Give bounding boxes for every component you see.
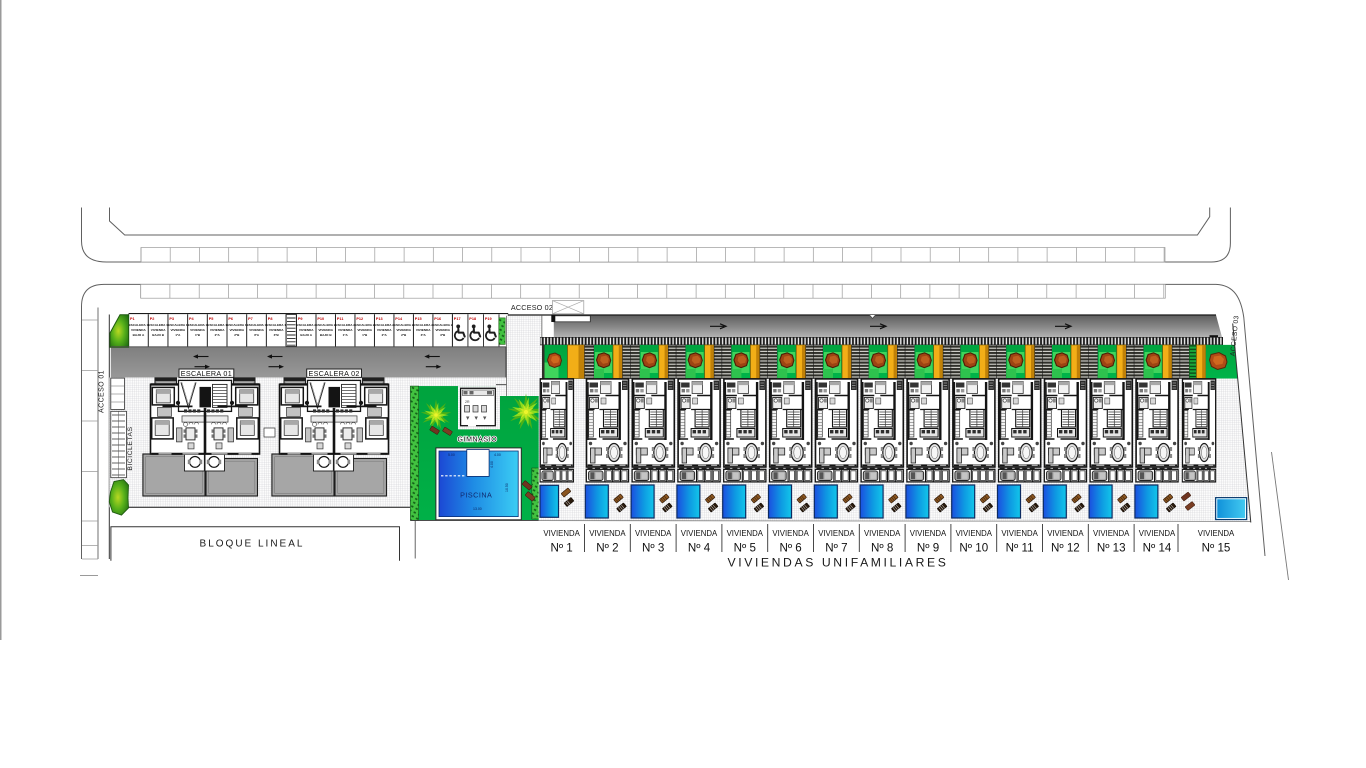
svg-text:P3: P3 (169, 317, 174, 321)
svg-text:P15: P15 (415, 317, 422, 321)
svg-text:VIVIENDA: VIVIENDA (131, 328, 146, 332)
svg-text:VIVIENDA: VIVIENDA (396, 328, 411, 332)
svg-text:2ºB: 2ºB (401, 333, 407, 337)
svg-text:ESCALERA 1: ESCALERA 1 (148, 323, 168, 327)
svg-text:VIVIENDA: VIVIENDA (681, 529, 718, 538)
svg-text:VIVIENDA: VIVIENDA (589, 529, 626, 538)
svg-text:VIVIENDA: VIVIENDA (543, 529, 580, 538)
svg-text:P7: P7 (248, 317, 253, 321)
svg-text:VIVIENDA: VIVIENDA (727, 529, 764, 538)
svg-text:P8: P8 (268, 317, 273, 321)
svg-text:3ºA: 3ºA (254, 333, 260, 337)
svg-text:VIVIENDA: VIVIENDA (338, 328, 353, 332)
svg-text:BICICLETAS: BICICLETAS (127, 426, 134, 470)
svg-text:P14: P14 (395, 317, 403, 321)
svg-text:ESCALERA 2: ESCALERA 2 (394, 323, 414, 327)
svg-text:P11: P11 (337, 317, 344, 321)
svg-text:13.00: 13.00 (473, 507, 482, 511)
svg-text:Nº 11: Nº 11 (1006, 542, 1034, 555)
svg-text:ESCALERA 2: ESCALERA 2 (316, 323, 336, 327)
svg-text:VIVIENDA: VIVIENDA (318, 328, 333, 332)
svg-text:Nº 10: Nº 10 (959, 542, 988, 555)
svg-text:VIVIENDA: VIVIENDA (956, 529, 993, 538)
svg-text:ESCALERA 2: ESCALERA 2 (413, 323, 433, 327)
svg-text:VIVIENDA: VIVIENDA (190, 328, 205, 332)
svg-text:P16: P16 (434, 317, 441, 321)
svg-text:4.00: 4.00 (490, 461, 494, 468)
svg-text:VIVIENDA: VIVIENDA (1001, 529, 1038, 538)
svg-text:ESCALERA 1: ESCALERA 1 (129, 323, 149, 327)
svg-text:P6: P6 (228, 317, 233, 321)
svg-text:VIVIENDA: VIVIENDA (377, 328, 392, 332)
svg-text:Nº 2: Nº 2 (596, 542, 618, 555)
svg-text:2ºA: 2ºA (215, 333, 221, 337)
svg-text:Nº 12: Nº 12 (1051, 542, 1080, 555)
svg-text:Nº 6: Nº 6 (779, 542, 801, 555)
svg-text:VIVIENDA: VIVIENDA (229, 328, 244, 332)
svg-text:5.00: 5.00 (448, 453, 455, 457)
svg-text:VIVIENDA: VIVIENDA (772, 529, 809, 538)
svg-text:ESCALERA 01: ESCALERA 01 (181, 369, 232, 378)
svg-text:1ºB: 1ºB (195, 333, 201, 337)
svg-text:ESCALERA 2: ESCALERA 2 (374, 323, 394, 327)
svg-text:ESCALERA 2: ESCALERA 2 (335, 323, 355, 327)
svg-text:P18: P18 (469, 317, 476, 321)
svg-text:VIVIENDA: VIVIENDA (910, 529, 947, 538)
svg-text:VIVIENDAS UNIFAMILIARES: VIVIENDAS UNIFAMILIARES (728, 556, 949, 570)
svg-text:BAJO B: BAJO B (320, 333, 333, 337)
svg-text:Nº 3: Nº 3 (642, 542, 664, 555)
svg-text:ESCALERA 2: ESCALERA 2 (355, 323, 375, 327)
svg-text:VIVIENDA: VIVIENDA (1093, 529, 1130, 538)
svg-text:VIVIENDA: VIVIENDA (151, 328, 166, 332)
svg-text:P10: P10 (317, 317, 324, 321)
svg-text:VIVIENDA: VIVIENDA (357, 328, 372, 332)
svg-text:BAJO B: BAJO B (152, 333, 165, 337)
svg-text:2ºB: 2ºB (234, 333, 240, 337)
svg-text:VIVIENDA: VIVIENDA (170, 328, 185, 332)
svg-text:ESCALERA 1: ESCALERA 1 (168, 323, 188, 327)
svg-text:Nº 13: Nº 13 (1097, 542, 1126, 555)
svg-text:PISCINA: PISCINA (460, 491, 492, 500)
svg-text:BLOQUE LINEAL: BLOQUE LINEAL (200, 539, 305, 550)
svg-text:VIVIENDA: VIVIENDA (249, 328, 264, 332)
svg-text:VIVIENDA: VIVIENDA (1198, 529, 1235, 538)
svg-text:P2: P2 (150, 317, 155, 321)
svg-text:VIVIENDA: VIVIENDA (299, 328, 314, 332)
svg-text:ESCALERA 2: ESCALERA 2 (433, 323, 453, 327)
svg-text:BAJO A: BAJO A (300, 333, 312, 337)
svg-text:3ºB: 3ºB (440, 333, 446, 337)
svg-text:Nº 8: Nº 8 (871, 542, 893, 555)
svg-text:ESCALERA 1: ESCALERA 1 (247, 323, 267, 327)
svg-text:P12: P12 (356, 317, 363, 321)
svg-text:2ºA: 2ºA (382, 333, 388, 337)
svg-text:VIVIENDA: VIVIENDA (269, 328, 284, 332)
svg-text:GIMNASIO: GIMNASIO (457, 437, 497, 444)
svg-text:Nº 5: Nº 5 (734, 542, 756, 555)
svg-text:3ºB: 3ºB (274, 333, 280, 337)
svg-text:VIVIENDA: VIVIENDA (1047, 529, 1084, 538)
svg-text:2R: 2R (465, 400, 470, 404)
svg-text:ESCALERA 2: ESCALERA 2 (296, 323, 316, 327)
svg-text:VIVIENDA: VIVIENDA (435, 328, 450, 332)
svg-text:1ºB: 1ºB (362, 333, 368, 337)
svg-text:VIVIENDA: VIVIENDA (416, 328, 431, 332)
svg-text:ACCESO 02: ACCESO 02 (511, 303, 553, 312)
svg-text:3ºA: 3ºA (421, 333, 427, 337)
svg-text:Nº 1: Nº 1 (550, 542, 572, 555)
svg-text:BAJO A: BAJO A (133, 333, 145, 337)
svg-text:P13: P13 (376, 317, 383, 321)
svg-text:VIVIENDA: VIVIENDA (1139, 529, 1176, 538)
svg-text:Nº 9: Nº 9 (917, 542, 939, 555)
svg-text:ESCALERA 1: ESCALERA 1 (207, 323, 227, 327)
svg-text:10.50: 10.50 (505, 483, 509, 492)
svg-text:Nº 7: Nº 7 (825, 542, 847, 555)
svg-text:4.00: 4.00 (494, 453, 501, 457)
svg-text:Nº 4: Nº 4 (688, 542, 711, 555)
svg-text:ACCESO 01: ACCESO 01 (99, 370, 106, 413)
svg-text:1ºA: 1ºA (343, 333, 349, 337)
svg-text:ESCALERA 1: ESCALERA 1 (188, 323, 208, 327)
svg-text:P17: P17 (454, 317, 461, 321)
svg-text:P1: P1 (130, 317, 135, 321)
svg-text:P9: P9 (298, 317, 303, 321)
svg-text:VIVIENDA: VIVIENDA (635, 529, 672, 538)
svg-text:ESCALERA 1: ESCALERA 1 (266, 323, 286, 327)
svg-text:1ºA: 1ºA (175, 333, 181, 337)
svg-text:VIVIENDA: VIVIENDA (864, 529, 901, 538)
svg-text:ESCALERA 1: ESCALERA 1 (227, 323, 247, 327)
svg-text:Nº 14: Nº 14 (1143, 542, 1172, 555)
svg-text:Nº 15: Nº 15 (1202, 542, 1231, 555)
svg-text:VIVIENDA: VIVIENDA (818, 529, 855, 538)
svg-text:P19: P19 (485, 317, 492, 321)
svg-text:ESCALERA 02: ESCALERA 02 (308, 369, 359, 378)
svg-text:P5: P5 (209, 317, 214, 321)
svg-text:VIVIENDA: VIVIENDA (210, 328, 225, 332)
